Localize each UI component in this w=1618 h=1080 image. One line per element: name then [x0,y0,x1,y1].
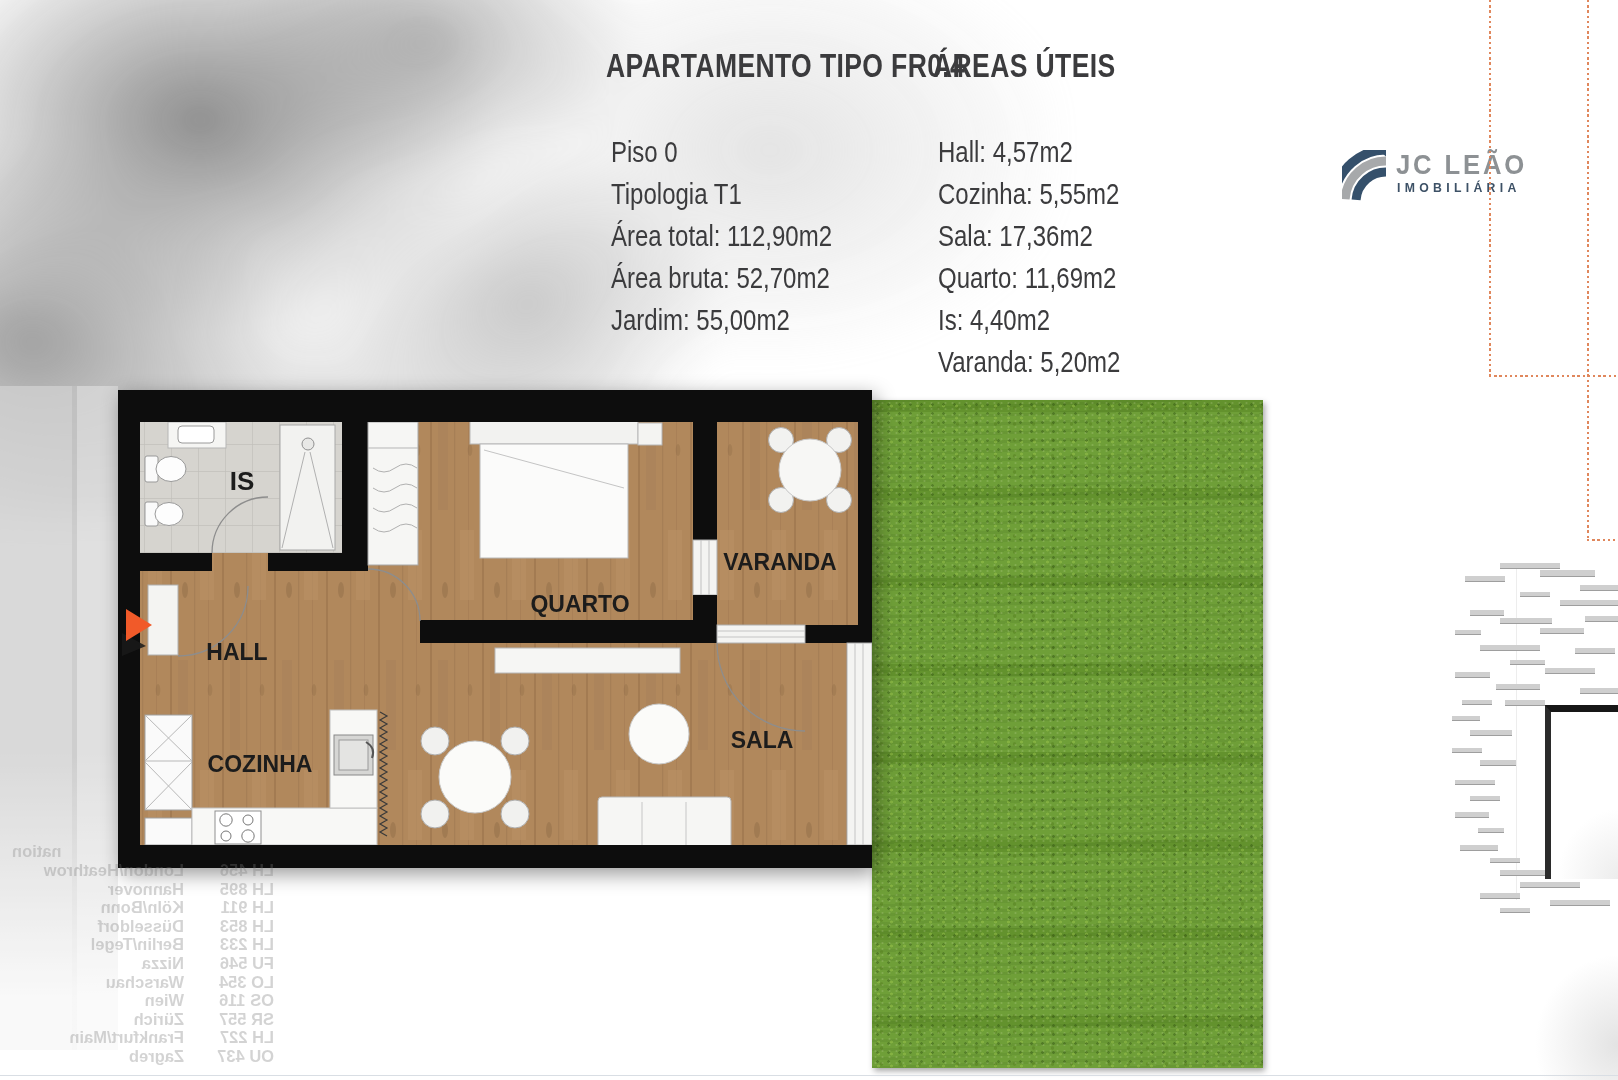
area-quarto: Quarto: 11,69m2 [938,257,1120,299]
page: APARTAMENTO TIPO FR0.4 ÁREAS ÚTEIS Piso … [0,0,1618,1080]
faded-bar [1465,576,1505,582]
faded-bar [1580,688,1618,694]
balcony-sill [717,625,805,643]
faded-bar [1480,893,1520,899]
area-hall: Hall: 4,57m2 [938,131,1120,173]
label-sala: SALA [731,727,794,753]
label-varanda: VARANDA [723,549,836,575]
coffee-table [629,704,689,764]
faded-bar [1480,645,1540,651]
kitchen-sink [334,735,373,775]
faded-bar [1500,870,1546,876]
faded-plan-fragment [1545,705,1618,879]
faded-bar [1496,684,1540,690]
faded-bar [1585,616,1618,622]
faded-bar [1520,882,1580,888]
board-row: FU 546Nizza [0,954,274,973]
shower [280,425,335,550]
sink [178,426,214,443]
bidet [145,502,183,526]
faded-vertical-line [1516,565,1517,900]
faded-bar [1460,845,1498,851]
entrance-door [148,585,178,655]
board-row: LH 456London/Heathrow [0,861,274,880]
faded-bar [1500,563,1560,569]
faded-bar [1478,828,1504,833]
board-row: LH 227Frankfurt/Main [0,1028,274,1047]
label-is: IS [230,466,255,496]
board-header-fragment: nation [12,842,82,861]
toilet [145,456,186,482]
area-cozinha: Cozinha: 5,55m2 [938,173,1120,215]
sideboard [495,648,680,673]
company-logo: JC LEÃO IMOBILIÁRIA [1342,148,1542,204]
label-hall: HALL [206,639,267,665]
faded-bar [1462,700,1492,705]
flight-board: LH 456London/Heathrow LH 895Hannover LH … [0,861,274,1066]
board-row: SR 557Zürich [0,1010,274,1029]
detail-jardim: Jardim: 55,00m2 [611,299,832,341]
slide-bottom-edge [0,1075,1618,1076]
floor-plan: IS HALL COZINHA QUARTO VARANDA SALA [118,390,872,868]
faded-bar [1500,618,1552,624]
faded-bar [1452,748,1482,753]
sliding-glass-door [847,643,872,845]
balcony-door [693,540,717,595]
wardrobe [368,422,418,565]
board-row: LH 853Düsseldorf [0,917,274,936]
logo-subtitle: IMOBILIÁRIA [1397,181,1521,195]
logo-subtitle-wrap: IMOBILIÁRIA [1397,178,1523,196]
dotted-guide-horizontal-2 [1587,539,1618,541]
board-row: LO 354Warschau [0,973,274,992]
apartment-title: APARTAMENTO TIPO FR0.4 [606,46,965,85]
faded-bar [1540,628,1584,634]
logo-text-wrap: JC LEÃO [1396,150,1534,181]
faded-bar [1510,660,1545,665]
faded-bar [1455,630,1481,635]
board-row: LH 233Berlin/Tegel [0,935,274,954]
board-row: LH 911Köln/Bonn [0,898,274,917]
area-varanda: Varanda: 5,20m2 [938,341,1120,383]
board-row: LH 895Hannover [0,880,274,899]
faded-bar [1470,610,1504,616]
area-sala: Sala: 17,36m2 [938,215,1120,257]
faded-bar [1480,760,1516,766]
faded-bar [1505,700,1545,706]
logo-name: JC LEÃO [1396,150,1527,181]
detail-piso: Piso 0 [611,131,832,173]
balcony-table-set [769,428,852,513]
useful-areas-list: Hall: 4,57m2 Cozinha: 5,55m2 Sala: 17,36… [938,131,1166,383]
faded-bar [1560,600,1618,606]
ac-unit [638,423,662,445]
garden-grass [872,400,1263,1068]
faded-corner-blob [1500,905,1618,1080]
dotted-guide-vertical-1 [1489,0,1491,377]
faded-bar [1455,672,1490,678]
faded-bar [1470,730,1512,736]
areas-title-wrap: ÁREAS ÚTEIS [933,46,1167,85]
jcleao-logo-icon [1342,150,1386,202]
faded-bar [1452,716,1480,721]
dotted-guide-vertical-2 [1587,0,1589,541]
label-quarto: QUARTO [530,591,629,617]
sofa [598,797,731,853]
stove [215,811,261,844]
faded-bar [1575,648,1615,654]
area-is: Is: 4,40m2 [938,299,1120,341]
faded-bar [1520,592,1550,597]
apartment-details: Piso 0 Tipologia T1 Área total: 112,90m2… [611,131,887,341]
dotted-guide-horizontal-1 [1489,375,1618,377]
faded-bar [1545,668,1595,674]
board-row: OS 116Wien [0,991,274,1010]
bed [470,414,638,558]
detail-area-total: Área total: 112,90m2 [611,215,832,257]
label-cozinha: COZINHA [208,751,313,777]
board-row: OU 437Zagreb [0,1047,274,1066]
detail-area-bruta: Área bruta: 52,70m2 [611,257,832,299]
faded-bar [1540,570,1595,577]
faded-bar [1455,812,1489,818]
areas-title: ÁREAS ÚTEIS [933,46,1116,85]
detail-tipologia: Tipologia T1 [611,173,832,215]
faded-bar [1490,858,1520,863]
faded-bar [1455,780,1495,785]
faded-bar [1580,585,1618,591]
faded-bar [1470,796,1500,801]
